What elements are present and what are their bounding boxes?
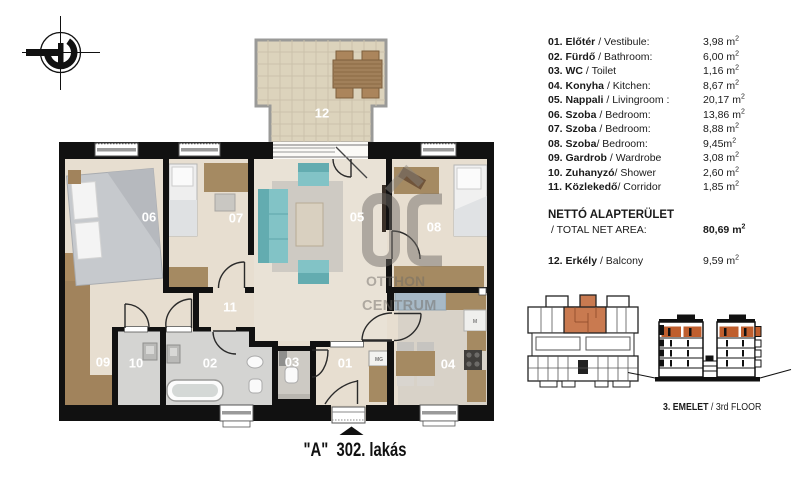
svg-text:M: M: [473, 319, 478, 325]
svg-text:CENTRUM: CENTRUM: [362, 298, 437, 314]
svg-text:MG: MG: [375, 357, 383, 363]
svg-text:OTTHON: OTTHON: [366, 273, 425, 289]
